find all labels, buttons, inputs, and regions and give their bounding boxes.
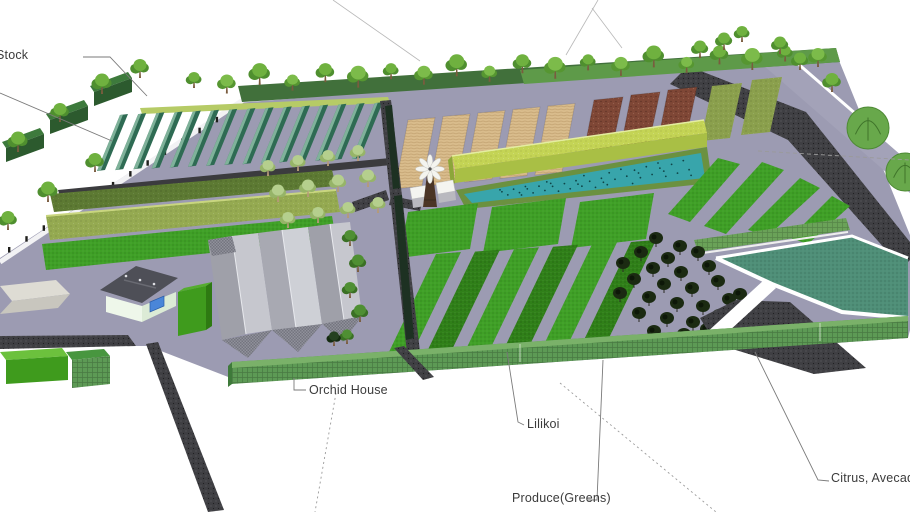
pond-speckle [640, 177, 642, 179]
pond-speckle [569, 188, 571, 190]
pond-speckle [558, 190, 560, 192]
tree-foliage [54, 103, 67, 115]
dark-tree-shade [689, 319, 694, 324]
tree-foliage [826, 73, 839, 85]
dark-tree-shade [714, 278, 719, 283]
pond-speckle [532, 192, 534, 194]
pond-speckle [581, 185, 583, 187]
farm-site-plan [0, 0, 910, 512]
pond-speckle [690, 175, 692, 177]
tree-foliage [681, 57, 692, 67]
tree-foliage [694, 40, 706, 51]
tree-foliage [11, 132, 25, 145]
guide-line [333, 0, 420, 61]
dark-tree-shade [637, 249, 642, 254]
fence-post [198, 128, 200, 134]
guide-line [592, 8, 622, 48]
tree-foliage [614, 57, 627, 69]
tree-foliage [2, 211, 15, 223]
tree-foliage [345, 282, 356, 292]
tree-icon [0, 211, 17, 230]
tree-foliage [329, 331, 339, 340]
tree-icon [130, 59, 149, 78]
dark-tree-shade [650, 328, 655, 333]
pond-speckle [499, 189, 501, 191]
tree-foliage [252, 63, 267, 77]
pond-speckle [651, 174, 653, 176]
dark-tree-shade [652, 235, 657, 240]
dark-tree-shade [705, 263, 710, 268]
pond-speckle [601, 177, 603, 179]
dark-tree-shade [619, 260, 624, 265]
dark-tree-shade [736, 291, 741, 296]
tree-foliage [351, 66, 366, 80]
3d-viewport[interactable]: Stock Orchid House Lilikoi Produce(Green… [0, 0, 910, 512]
shed-wall [206, 282, 212, 330]
tree-foliage [484, 66, 495, 76]
tree-foliage [516, 54, 529, 66]
tree-icon [691, 40, 708, 58]
tree-foliage [332, 174, 344, 185]
sky-guide-lines [333, 0, 622, 61]
tree-foliage [283, 212, 294, 222]
dark-tree-shade [649, 265, 654, 270]
pond-speckle [608, 172, 610, 174]
pond-speckle [665, 176, 667, 178]
tree-foliage [353, 145, 364, 155]
tree-foliage [354, 304, 366, 315]
dark-tree-shade [616, 290, 621, 295]
tree-foliage [417, 66, 430, 78]
pond-speckle [513, 188, 515, 190]
dark-tree-shade [694, 249, 699, 254]
tree-icon [217, 75, 236, 94]
pond-speckle [645, 166, 647, 168]
tree-foliage [449, 54, 464, 68]
label-lilikoi: Lilikoi [527, 417, 560, 431]
pond-speckle [614, 178, 616, 180]
pond-speckle [620, 168, 622, 170]
tree-foliage [362, 169, 374, 180]
dark-tree-shade [663, 315, 668, 320]
fence-post [129, 171, 131, 177]
tree-foliage [646, 45, 661, 59]
pond-speckle [682, 160, 684, 162]
dark-tree-shade [688, 285, 693, 290]
tree-foliage [263, 160, 274, 170]
dark-tree-shade [673, 300, 678, 305]
tree-foliage [319, 63, 332, 75]
tree-foliage [302, 179, 314, 190]
pond-speckle [632, 183, 634, 185]
tree-foliage [323, 150, 334, 160]
pond-speckle [659, 167, 661, 169]
pond-speckle [525, 186, 527, 188]
tree-foliage [737, 26, 748, 36]
pond-speckle [519, 192, 521, 194]
pond-speckle [526, 188, 528, 190]
tree-foliage [41, 182, 55, 195]
pond-speckle [501, 191, 503, 193]
pond-speckle [671, 164, 673, 166]
roof-vent [153, 283, 156, 286]
pond-speckle [606, 184, 608, 186]
dark-tree-shade [699, 303, 704, 308]
tree-icon [316, 63, 335, 82]
shadehouse-small [72, 356, 110, 388]
storage-shed [178, 282, 212, 336]
tree-icon [734, 26, 750, 42]
pond-speckle [564, 183, 566, 185]
pond-speckle [589, 180, 591, 182]
label-citrus-avocado: Citrus, Avecado [831, 471, 910, 485]
shadehouse-end [228, 362, 232, 387]
dark-tree-shade [630, 276, 635, 281]
label-produce-greens: Produce(Greens) [512, 491, 611, 505]
pond-speckle [552, 186, 554, 188]
tree-foliage [812, 48, 825, 60]
windmill-hub [428, 167, 431, 170]
pond-speckle [544, 190, 546, 192]
pond-speckle [677, 172, 679, 174]
pond-speckle [550, 183, 552, 185]
pond-speckle [603, 181, 605, 183]
tree-foliage [548, 57, 563, 71]
pond-speckle [595, 187, 597, 189]
guide-line [566, 0, 598, 55]
label-orchid-house: Orchid House [309, 383, 388, 397]
tree-foliage [343, 202, 354, 212]
tree-foliage [287, 75, 298, 85]
dark-tree-shade [664, 255, 669, 260]
roof-vent [139, 279, 142, 282]
tree-foliage [745, 48, 760, 62]
shed-wall [178, 286, 206, 336]
pond-speckle [575, 180, 577, 182]
pond-speckle [521, 194, 523, 196]
tree-foliage [718, 32, 730, 43]
tree-foliage [373, 197, 384, 207]
pond-speckle [688, 169, 690, 171]
label-stock: Stock [0, 48, 28, 62]
tree-foliage [293, 155, 304, 165]
tree-foliage [95, 74, 109, 87]
fence-post [43, 225, 45, 231]
tree-foliage [189, 72, 200, 82]
pond-speckle [507, 194, 509, 196]
tree-foliage [220, 75, 233, 87]
pond-speckle [577, 183, 579, 185]
fence-post [146, 160, 148, 166]
tree-foliage [89, 153, 102, 165]
tree-foliage [345, 230, 356, 240]
pond-speckle [583, 175, 585, 177]
fence-post [216, 117, 218, 123]
pond-speckle [626, 175, 628, 177]
dark-tree-shade [660, 281, 665, 286]
tree-icon [186, 72, 202, 88]
fence-post [8, 247, 10, 253]
pond-speckle [634, 169, 636, 171]
pond-speckle [638, 172, 640, 174]
tree-foliage [272, 184, 284, 195]
tree-foliage [794, 52, 806, 63]
roof-vent [125, 275, 128, 278]
fence-post [25, 236, 27, 242]
dark-tree-shade [645, 294, 650, 299]
dark-tree-shade [676, 243, 681, 248]
tree-foliage [342, 329, 352, 338]
dark-tree-shade [725, 296, 730, 301]
pond-speckle [657, 162, 659, 164]
tree-foliage [386, 63, 397, 73]
tree-foliage [134, 59, 147, 71]
windmill-blades [416, 155, 445, 184]
shed-wall [6, 356, 68, 384]
dark-tree-shade [677, 269, 682, 274]
tree-foliage [313, 207, 324, 217]
tree-icon [248, 63, 269, 85]
dark-tree-shade [635, 310, 640, 315]
tree-foliage [774, 36, 786, 47]
pond-speckle [546, 181, 548, 183]
tree-foliage [352, 254, 364, 265]
pond-speckle [538, 185, 540, 187]
tree-foliage [583, 54, 594, 64]
pond-speckle [663, 170, 665, 172]
